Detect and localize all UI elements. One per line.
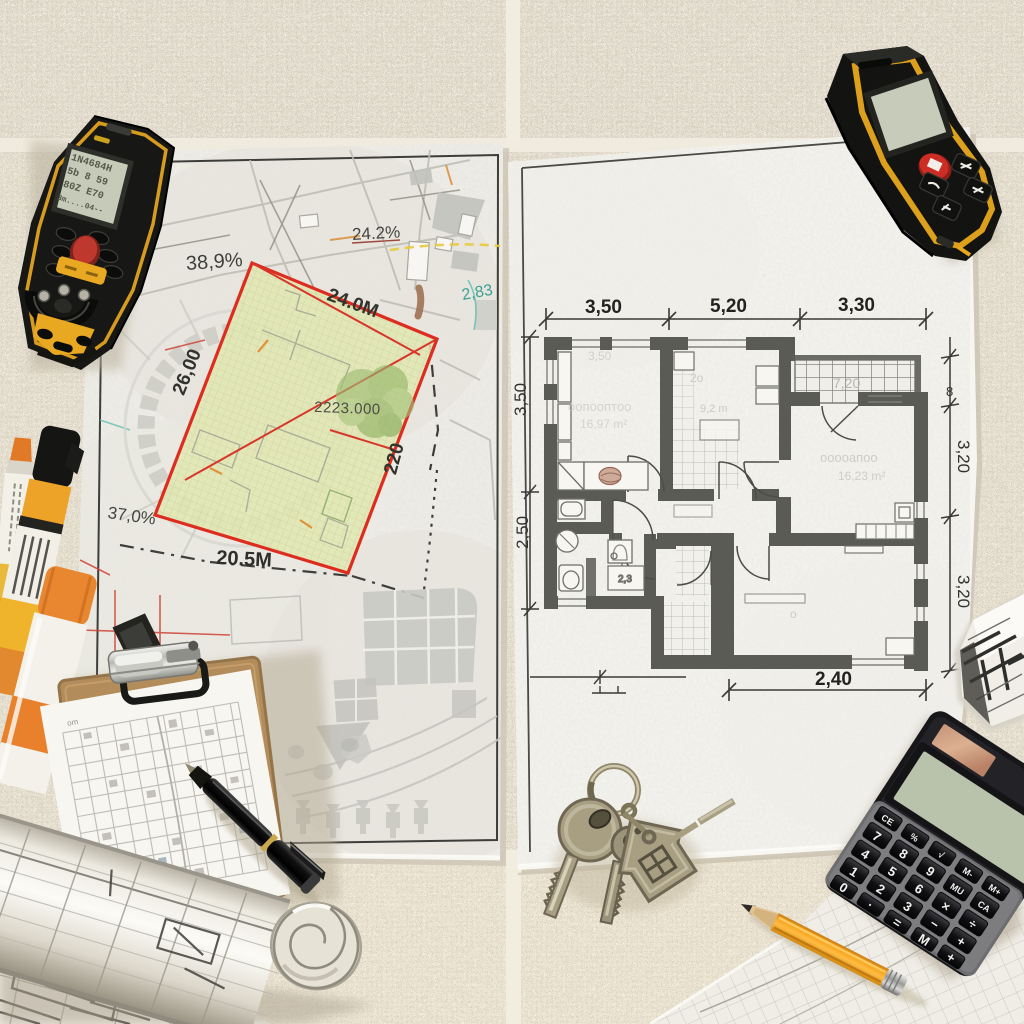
svg-text:3,50: 3,50 bbox=[588, 349, 612, 363]
svg-text:3,20: 3,20 bbox=[954, 440, 973, 473]
svg-text:ooooaпoo: ooooaпoo bbox=[820, 450, 878, 465]
svg-text:38,9%: 38,9% bbox=[185, 249, 243, 275]
svg-text:2,40: 2,40 bbox=[815, 669, 852, 690]
svg-text:3,50: 3,50 bbox=[511, 383, 530, 416]
svg-text:8: 8 bbox=[946, 384, 953, 399]
svg-text:7,20: 7,20 bbox=[833, 375, 860, 391]
svg-text:3,30: 3,30 bbox=[838, 295, 875, 316]
svg-text:16,23 m²: 16,23 m² bbox=[838, 469, 885, 483]
svg-text:5,20: 5,20 bbox=[710, 296, 747, 317]
svg-text:o: o bbox=[790, 607, 797, 621]
svg-text:2,3: 2,3 bbox=[618, 574, 632, 585]
svg-text:9,2 m: 9,2 m bbox=[700, 403, 728, 415]
svg-text:ooпooптoo: ooпooптoo bbox=[568, 399, 631, 414]
svg-text:3,50: 3,50 bbox=[585, 297, 622, 318]
svg-text:2223.000: 2223.000 bbox=[314, 399, 381, 418]
svg-text:2,50: 2,50 bbox=[513, 516, 532, 549]
svg-text:3,20: 3,20 bbox=[954, 575, 973, 608]
svg-text:20.5M: 20.5M bbox=[216, 547, 273, 572]
svg-text:16,97 m²: 16,97 m² bbox=[580, 417, 627, 431]
svg-text:2o: 2o bbox=[690, 371, 704, 385]
